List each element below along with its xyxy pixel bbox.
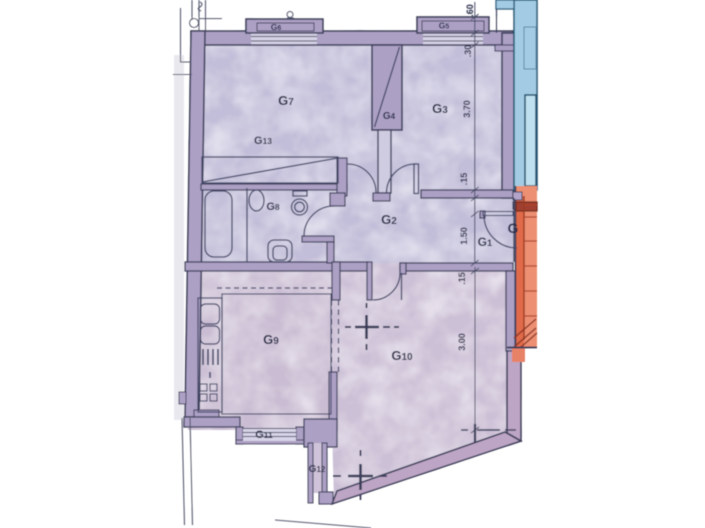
svg-text:.60: .60 [465, 4, 475, 17]
svg-text:G11: G11 [255, 429, 273, 441]
svg-text:G1: G1 [478, 235, 493, 249]
svg-text:1.50: 1.50 [459, 227, 469, 245]
svg-text:3.00: 3.00 [457, 333, 467, 351]
svg-text:.15: .15 [459, 173, 469, 186]
svg-text:G12: G12 [309, 464, 326, 475]
svg-text:.15: .15 [457, 272, 467, 285]
svg-text:G: G [508, 220, 519, 236]
svg-text:G13: G13 [254, 135, 272, 147]
svg-text:G4: G4 [383, 111, 396, 122]
svg-text:.30: .30 [463, 45, 473, 58]
svg-text:3.70: 3.70 [462, 100, 472, 118]
svg-text:G8: G8 [266, 201, 280, 213]
